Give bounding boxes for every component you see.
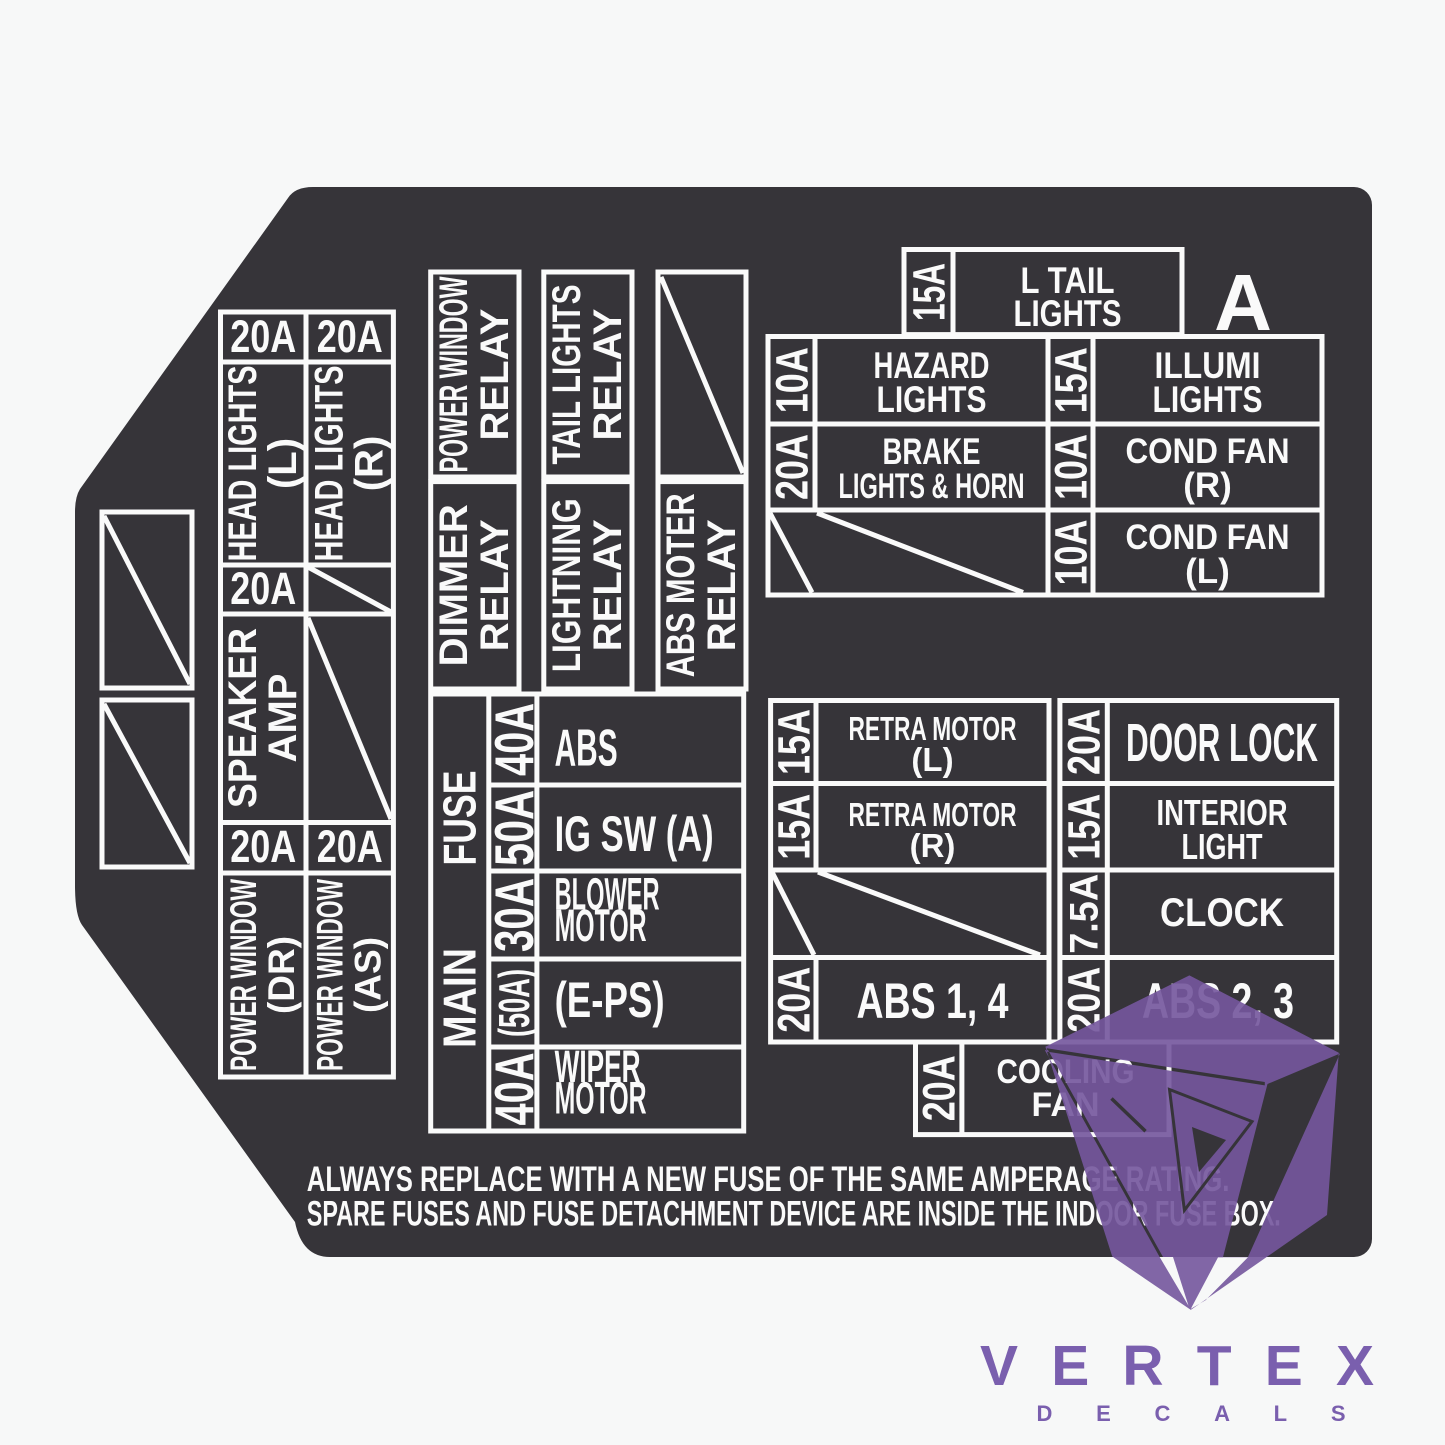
- svg-text:15A: 15A: [904, 263, 955, 321]
- svg-text:MOTOR: MOTOR: [555, 900, 647, 951]
- svg-text:DIMMERRELAY: DIMMERRELAY: [432, 504, 517, 666]
- svg-text:LIGHTS: LIGHTS: [877, 379, 987, 420]
- svg-text:15A: 15A: [768, 709, 819, 775]
- svg-text:DOOR LOCK: DOOR LOCK: [1126, 713, 1318, 773]
- svg-text:(E-PS): (E-PS): [555, 972, 665, 1028]
- svg-text:7.5A: 7.5A: [1063, 874, 1107, 954]
- svg-text:CLOCK: CLOCK: [1160, 891, 1284, 935]
- svg-text:(L): (L): [1185, 552, 1230, 591]
- svg-text:50A: 50A: [483, 790, 545, 866]
- svg-text:(L): (L): [911, 741, 953, 778]
- svg-text:20A: 20A: [317, 311, 383, 362]
- svg-text:(R): (R): [910, 827, 956, 864]
- svg-text:ABS 1, 4: ABS 1, 4: [857, 973, 1009, 1029]
- svg-text:10A: 10A: [1046, 520, 1097, 586]
- svg-text:15A: 15A: [1059, 794, 1110, 860]
- svg-text:MOTOR: MOTOR: [555, 1073, 647, 1124]
- svg-text:LIGHT: LIGHT: [1182, 826, 1263, 867]
- svg-text:ABS: ABS: [555, 720, 618, 778]
- svg-text:20A: 20A: [767, 434, 818, 500]
- svg-text:LIGHTNINGRELAY: LIGHTNINGRELAY: [545, 498, 630, 672]
- svg-text:20A: 20A: [914, 1055, 965, 1121]
- svg-text:10A: 10A: [1046, 434, 1097, 500]
- svg-text:20A: 20A: [230, 311, 296, 362]
- svg-text:(50A): (50A): [490, 969, 539, 1037]
- svg-text:40A: 40A: [483, 703, 545, 776]
- svg-text:20A: 20A: [768, 967, 819, 1033]
- svg-text:20A: 20A: [230, 563, 296, 614]
- svg-text:20A: 20A: [230, 821, 296, 872]
- svg-text:FUSE: FUSE: [434, 771, 486, 866]
- svg-text:LIGHTS: LIGHTS: [1153, 379, 1263, 420]
- svg-text:A: A: [1214, 258, 1272, 347]
- svg-text:40A: 40A: [483, 1053, 545, 1126]
- svg-text:IG SW (A): IG SW (A): [555, 806, 714, 862]
- svg-text:20A: 20A: [1059, 709, 1110, 775]
- svg-text:10A: 10A: [767, 347, 818, 413]
- svg-text:15A: 15A: [1046, 347, 1097, 413]
- svg-text:30A: 30A: [483, 878, 545, 952]
- svg-text:BRAKE: BRAKE: [883, 431, 981, 472]
- svg-text:15A: 15A: [768, 794, 819, 860]
- svg-text:MAIN: MAIN: [434, 948, 486, 1048]
- svg-text:20A: 20A: [317, 821, 383, 872]
- svg-text:ABS MOTERRELAY: ABS MOTERRELAY: [659, 493, 744, 677]
- svg-text:(R): (R): [1183, 466, 1232, 505]
- svg-text:LIGHTS & HORN: LIGHTS & HORN: [839, 467, 1025, 506]
- svg-text:TAIL LIGHTSRELAY: TAIL LIGHTSRELAY: [545, 285, 630, 465]
- svg-text:LIGHTS: LIGHTS: [1014, 293, 1122, 334]
